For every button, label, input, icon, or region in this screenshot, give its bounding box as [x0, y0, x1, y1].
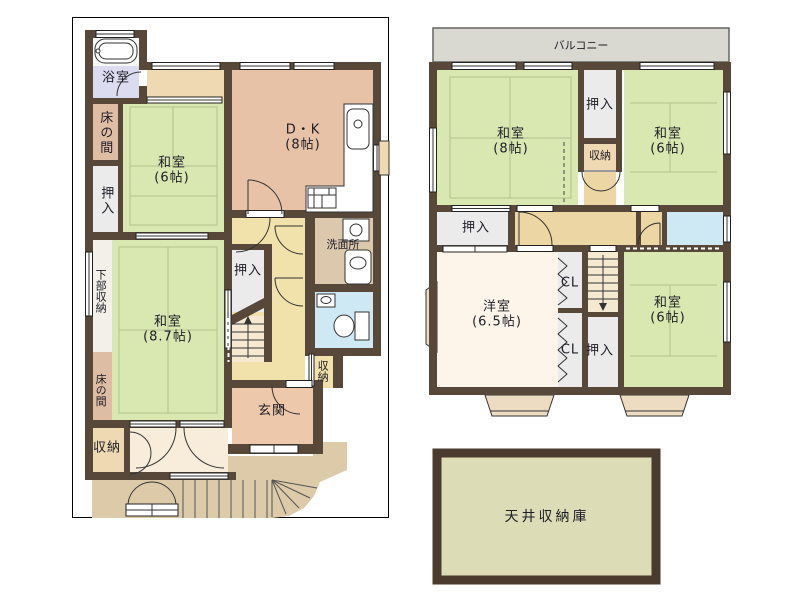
room-size: (6帖): [650, 311, 685, 326]
toilet-vestibule: [641, 212, 662, 245]
window: [452, 206, 510, 212]
room-label-senmenjo: 洗面所: [327, 239, 360, 251]
window: [430, 128, 437, 192]
toilet-tank-icon: [355, 312, 369, 340]
room-label-dk: D・K (8帖): [285, 123, 320, 152]
room-label-washitsu6-se: 和室 (6帖): [650, 296, 685, 325]
room-label-storage-sw: 収納: [93, 442, 121, 457]
toilet-2f: [667, 212, 723, 245]
hall-2f: [515, 212, 636, 245]
sliding-door: [443, 246, 507, 252]
room-label-oshiire-mid: 押入: [234, 265, 262, 280]
room-label-oshiire-west: 押入: [462, 222, 490, 237]
cl-closets: [558, 252, 582, 387]
entry-room: [128, 428, 228, 478]
room-size: (6帖): [154, 171, 189, 186]
room-name: 和室: [493, 127, 528, 142]
room-label-tokonoma-lower: 床の間: [94, 374, 106, 407]
room-name: D・K: [285, 123, 320, 138]
window: [724, 92, 731, 154]
room-label-cl-lower: CL: [561, 344, 579, 359]
room-size: (6帖): [650, 142, 685, 157]
room-label-oshiire-upper: 押入: [98, 186, 113, 216]
window: [724, 216, 731, 242]
window: [130, 421, 176, 427]
hand-basin-icon: [317, 294, 335, 307]
window: [240, 63, 290, 70]
room-name: 和室: [650, 127, 685, 142]
room-name: 和室: [154, 156, 189, 171]
window: [452, 63, 516, 70]
room-size: (8.7帖): [143, 330, 193, 345]
window: [170, 473, 228, 479]
window: [724, 282, 731, 342]
toilet-bowl-icon: [334, 315, 354, 337]
room-name: 洋室: [472, 300, 522, 315]
bay-window-south1: [485, 395, 554, 416]
kitchen-hatch-ledge: [379, 141, 389, 175]
room-label-washitsu8: 和室 (8帖): [493, 127, 528, 156]
room-size: (8帖): [285, 138, 320, 153]
bath-tap-icon: [96, 49, 100, 53]
room-label-youshitsu: 洋室 (6.5帖): [472, 300, 522, 329]
room-label-balcony: バルコニー: [554, 40, 609, 52]
room-label-oshiire-north: 押入: [586, 99, 614, 114]
room-name: 和室: [650, 296, 685, 311]
room-label-cl-upper: CL: [561, 277, 579, 292]
floor-plan-page: 浴室 床の間 和室 (6帖) 押入 D・K (8帖) 洗面所 下部収納 押入 和…: [0, 0, 800, 600]
room-label-storage-center: 収納: [589, 150, 611, 162]
window: [136, 233, 208, 239]
bay-window-south2: [620, 395, 689, 416]
washbasin-icon: [345, 250, 371, 284]
room-label-washitsu6-1f: 和室 (6帖): [154, 156, 189, 185]
room-label-genkan: 玄関: [258, 405, 286, 420]
kitchen-sink-icon: [347, 109, 369, 149]
window: [524, 63, 572, 70]
room-label-oshiire-south: 押入: [586, 345, 614, 360]
engawa-corridor: [147, 70, 224, 100]
room-name: 和室: [143, 315, 193, 330]
room-label-storage-east: 収納: [316, 360, 328, 382]
attic-storage-label: 天井収納庫: [505, 510, 590, 526]
room-label-bath: 浴室: [102, 72, 130, 87]
window: [96, 31, 134, 38]
room-size: (8帖): [493, 142, 528, 157]
room-label-tokonoma-upper: 床の間: [97, 111, 112, 156]
window: [152, 63, 220, 70]
faucet-icon: [354, 120, 362, 128]
window: [294, 63, 334, 70]
window: [640, 63, 714, 70]
shoji-screen: [147, 97, 222, 103]
entrance-door: [250, 445, 298, 453]
room-label-washitsu87: 和室 (8.7帖): [143, 315, 193, 344]
window: [180, 421, 224, 427]
room-size: (6.5帖): [472, 315, 522, 330]
room-label-washitsu6-ne: 和室 (6帖): [650, 127, 685, 156]
room-label-lower-storage: 下部収納: [94, 269, 106, 313]
window: [86, 252, 93, 316]
